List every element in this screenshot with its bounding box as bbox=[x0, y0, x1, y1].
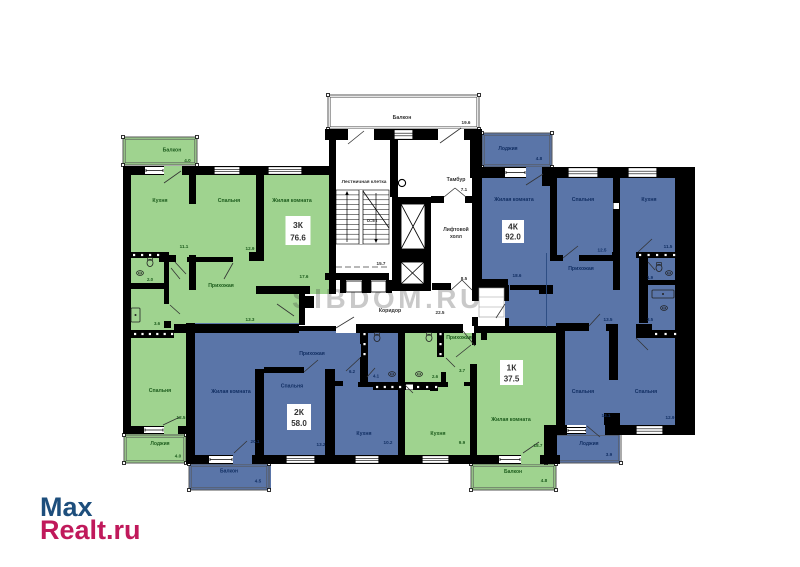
svg-text:13.2: 13.2 bbox=[317, 442, 326, 447]
svg-text:19.6: 19.6 bbox=[462, 120, 471, 125]
svg-text:15.7: 15.7 bbox=[377, 261, 386, 266]
svg-text:Тамбур: Тамбур bbox=[447, 176, 466, 183]
svg-text:92.0: 92.0 bbox=[505, 233, 521, 242]
svg-text:О=5 t: О=5 t bbox=[367, 218, 378, 223]
svg-text:4.0: 4.0 bbox=[175, 454, 182, 459]
svg-text:10.2: 10.2 bbox=[384, 440, 393, 445]
svg-text:4.8: 4.8 bbox=[541, 478, 548, 483]
svg-text:13.1: 13.1 bbox=[602, 413, 611, 418]
svg-text:8.5: 8.5 bbox=[461, 276, 468, 281]
svg-text:Кухня: Кухня bbox=[152, 198, 167, 204]
svg-text:13.3: 13.3 bbox=[246, 317, 255, 322]
svg-text:12.5: 12.5 bbox=[177, 415, 186, 420]
svg-text:4.0: 4.0 bbox=[184, 158, 191, 163]
svg-text:7.1: 7.1 bbox=[461, 187, 468, 192]
svg-text:20.1: 20.1 bbox=[251, 439, 260, 444]
svg-text:17.6: 17.6 bbox=[300, 274, 309, 279]
svg-text:Спальня: Спальня bbox=[281, 384, 303, 390]
svg-text:Жилая комната: Жилая комната bbox=[210, 389, 251, 395]
svg-text:4.5: 4.5 bbox=[255, 479, 262, 484]
svg-text:18.7: 18.7 bbox=[534, 443, 543, 448]
svg-text:Балкон: Балкон bbox=[393, 115, 412, 121]
svg-text:4.1: 4.1 bbox=[373, 374, 380, 379]
svg-text:Прихожая: Прихожая bbox=[568, 266, 594, 272]
svg-text:Жилая комната: Жилая комната bbox=[490, 417, 531, 423]
svg-text:4К: 4К bbox=[508, 222, 519, 232]
svg-text:Прихожая: Прихожая bbox=[208, 283, 234, 289]
svg-text:11.5: 11.5 bbox=[664, 244, 673, 249]
svg-text:22.5: 22.5 bbox=[436, 310, 445, 315]
svg-text:Лоджия: Лоджия bbox=[150, 441, 169, 447]
svg-text:3.6: 3.6 bbox=[154, 321, 161, 326]
svg-text:12.5: 12.5 bbox=[598, 248, 607, 253]
svg-text:18.6: 18.6 bbox=[513, 273, 522, 278]
svg-text:Спальня: Спальня bbox=[218, 198, 240, 204]
svg-text:Жилая комната: Жилая комната bbox=[271, 198, 312, 204]
svg-text:Балкон: Балкон bbox=[504, 469, 522, 475]
svg-text:2К: 2К bbox=[294, 407, 305, 417]
svg-text:9.9: 9.9 bbox=[459, 440, 466, 445]
svg-text:Спальня: Спальня bbox=[635, 389, 657, 395]
svg-text:4.8: 4.8 bbox=[536, 156, 543, 161]
svg-text:3К: 3К bbox=[293, 220, 304, 230]
svg-text:76.6: 76.6 bbox=[290, 234, 306, 243]
svg-text:Коридор: Коридор bbox=[379, 308, 401, 314]
svg-text:3.9: 3.9 bbox=[606, 452, 613, 457]
svg-text:Кухня: Кухня bbox=[430, 431, 445, 437]
svg-text:6.2: 6.2 bbox=[349, 369, 356, 374]
svg-text:12.9: 12.9 bbox=[666, 415, 675, 420]
svg-text:3.7: 3.7 bbox=[459, 368, 466, 373]
svg-text:Спальня: Спальня bbox=[572, 389, 594, 395]
svg-text:3.5: 3.5 bbox=[647, 317, 654, 322]
svg-text:37.5: 37.5 bbox=[504, 374, 520, 383]
svg-text:Лифтовой: Лифтовой bbox=[443, 226, 468, 233]
svg-text:Балкон: Балкон bbox=[163, 148, 182, 154]
svg-text:2.6: 2.6 bbox=[432, 374, 439, 379]
svg-text:12.9: 12.9 bbox=[246, 246, 255, 251]
svg-text:Балкон: Балкон bbox=[220, 469, 238, 475]
svg-text:Лоджия: Лоджия bbox=[498, 146, 517, 152]
svg-text:холл: холл bbox=[450, 234, 462, 240]
svg-text:Лоджия: Лоджия bbox=[579, 441, 598, 447]
svg-text:Realt.ru: Realt.ru bbox=[40, 515, 141, 545]
svg-text:Кухня: Кухня bbox=[641, 197, 656, 203]
svg-text:Спальня: Спальня bbox=[149, 388, 171, 394]
svg-text:1.9: 1.9 bbox=[647, 275, 654, 280]
svg-text:Спальня: Спальня bbox=[572, 197, 594, 203]
svg-text:Лестничная клетка: Лестничная клетка bbox=[342, 179, 387, 185]
svg-text:Жилая комната: Жилая комната bbox=[493, 197, 534, 203]
svg-text:Прихожая: Прихожая bbox=[299, 351, 325, 357]
svg-text:1К: 1К bbox=[507, 363, 518, 373]
svg-text:11.1: 11.1 bbox=[180, 244, 189, 249]
svg-text:13.5: 13.5 bbox=[604, 317, 613, 322]
svg-text:2.0: 2.0 bbox=[147, 277, 154, 282]
svg-text:58.0: 58.0 bbox=[291, 419, 307, 428]
svg-text:Прихожая: Прихожая bbox=[446, 335, 472, 341]
svg-text:Кухня: Кухня bbox=[356, 431, 371, 437]
